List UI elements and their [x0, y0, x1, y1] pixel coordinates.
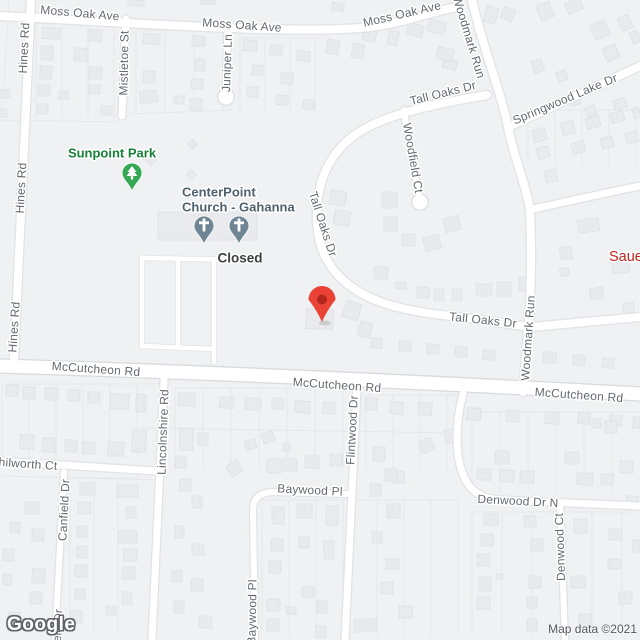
building	[559, 246, 573, 260]
building	[30, 592, 42, 604]
building	[601, 474, 614, 486]
building	[128, 0, 144, 6]
building	[467, 408, 482, 421]
building	[384, 217, 397, 231]
building	[544, 169, 558, 183]
building	[243, 40, 258, 52]
building	[89, 85, 100, 94]
building	[477, 469, 492, 481]
building	[245, 398, 262, 411]
building	[276, 94, 289, 105]
building	[402, 234, 415, 246]
building	[619, 592, 632, 604]
building	[252, 65, 264, 76]
building	[577, 473, 594, 486]
building	[520, 471, 535, 484]
building	[497, 282, 511, 296]
building	[427, 344, 440, 355]
building	[0, 109, 7, 117]
building	[589, 287, 603, 300]
poi-status-closed: Closed	[217, 251, 262, 266]
building	[574, 519, 587, 533]
building	[68, 390, 80, 401]
building	[396, 282, 406, 289]
building	[198, 433, 208, 445]
building	[101, 106, 112, 115]
building	[633, 417, 640, 428]
building	[106, 606, 116, 615]
building	[122, 592, 132, 604]
map-tiles: Moss Oak AveMoss Oak AveMoss Oak AveHine…	[0, 0, 640, 640]
building	[42, 28, 61, 40]
poi-label-saue[interactable]: Saue	[609, 249, 640, 265]
building	[329, 190, 347, 207]
building	[333, 210, 351, 227]
map-canvas[interactable]: Moss Oak AveMoss Oak AveMoss Oak AveHine…	[0, 0, 640, 640]
building	[452, 289, 462, 300]
building	[192, 496, 202, 508]
building	[366, 619, 376, 631]
building	[247, 87, 259, 98]
building	[296, 50, 310, 62]
building	[77, 526, 87, 537]
building	[78, 502, 91, 514]
building	[372, 532, 382, 543]
building	[180, 479, 191, 491]
building	[297, 504, 312, 518]
building	[620, 461, 634, 474]
building	[365, 398, 378, 411]
building	[387, 504, 400, 518]
building	[483, 350, 496, 361]
building	[38, 85, 50, 96]
poi-label-sunpoint-park[interactable]: Sunpoint Park	[68, 146, 157, 161]
building	[124, 549, 137, 561]
street-label-hines-rd: Hines Rd	[16, 22, 33, 74]
building	[299, 537, 309, 548]
building	[172, 571, 182, 582]
building	[484, 514, 498, 525]
building	[178, 393, 196, 407]
building	[381, 582, 393, 594]
building	[175, 526, 184, 538]
google-logo[interactable]: Google	[7, 614, 75, 636]
poi-label-church-line1[interactable]: CenterPoint	[182, 185, 256, 200]
building	[272, 398, 285, 410]
building	[434, 289, 444, 300]
building	[220, 397, 235, 409]
building	[269, 561, 281, 573]
building	[3, 574, 12, 585]
building	[332, 2, 345, 12]
building	[110, 394, 130, 410]
building	[143, 71, 155, 83]
building	[633, 540, 640, 552]
building	[602, 358, 615, 369]
street-label-juniper-ln: Juniper Ln	[219, 34, 235, 93]
building	[324, 541, 334, 559]
building	[75, 589, 85, 600]
building	[65, 440, 77, 452]
building	[527, 597, 537, 608]
building	[192, 36, 205, 46]
building	[40, 66, 52, 79]
building	[118, 531, 137, 543]
building	[75, 565, 87, 577]
building	[531, 539, 543, 551]
building	[283, 444, 290, 451]
building	[267, 599, 280, 611]
building	[23, 387, 35, 399]
building	[529, 576, 541, 588]
building	[527, 619, 537, 631]
building	[609, 529, 622, 540]
building	[174, 96, 184, 104]
building	[354, 620, 364, 632]
building	[382, 192, 397, 208]
building	[592, 419, 601, 428]
building	[477, 597, 490, 609]
building	[132, 430, 147, 452]
building	[399, 606, 412, 618]
building	[122, 567, 135, 579]
building	[88, 392, 100, 403]
building	[32, 569, 45, 583]
building	[3, 549, 14, 561]
building	[608, 559, 621, 569]
building	[191, 79, 203, 89]
building	[477, 554, 490, 566]
building	[180, 428, 193, 450]
building	[195, 59, 205, 71]
building	[6, 385, 18, 396]
building	[543, 352, 557, 364]
building	[317, 601, 327, 613]
building	[108, 442, 124, 457]
building	[74, 48, 88, 61]
building	[524, 516, 536, 527]
building	[175, 456, 186, 468]
building	[385, 469, 397, 481]
building	[283, 459, 297, 471]
building	[330, 454, 342, 466]
building	[192, 544, 204, 555]
building	[573, 355, 586, 366]
building	[42, 438, 56, 452]
building	[326, 39, 340, 55]
building	[267, 619, 279, 631]
building	[89, 67, 102, 79]
building	[190, 99, 202, 110]
street-label-denwood-ct: Denwood Ct	[552, 512, 568, 581]
building	[281, 72, 294, 84]
street-label-baywood-pl: Baywood Pl	[244, 579, 259, 640]
building	[271, 539, 283, 551]
building	[37, 104, 48, 114]
building	[20, 435, 34, 449]
building	[351, 43, 365, 59]
building	[605, 421, 617, 433]
building	[59, 91, 68, 99]
street-label-lincolnshire-rd: Lincolnshire Rd	[155, 389, 172, 475]
building	[481, 534, 493, 546]
building	[370, 484, 381, 496]
building	[199, 616, 212, 628]
building	[500, 470, 515, 483]
building	[302, 99, 314, 109]
building	[476, 284, 492, 296]
building	[479, 577, 491, 591]
building	[371, 338, 383, 349]
building	[417, 287, 429, 298]
building	[32, 529, 44, 541]
building	[418, 403, 433, 416]
building	[578, 413, 591, 425]
building	[272, 507, 284, 524]
building	[496, 574, 503, 579]
building	[559, 267, 569, 276]
building	[0, 90, 10, 98]
map-data-attribution: Map data ©2021	[548, 622, 637, 636]
building	[270, 44, 283, 55]
building	[25, 502, 39, 514]
building	[316, 626, 326, 638]
building	[139, 90, 158, 104]
building	[390, 402, 404, 415]
building	[545, 412, 560, 425]
building	[507, 410, 520, 423]
building	[191, 579, 203, 591]
building	[77, 546, 87, 558]
building	[45, 388, 58, 400]
street-label-mistletoe-st: Mistletoe St	[116, 30, 131, 96]
building	[117, 485, 138, 497]
building	[571, 576, 585, 588]
building	[374, 266, 389, 279]
building	[295, 401, 311, 414]
building	[200, 0, 215, 4]
building	[88, 30, 103, 42]
building	[10, 522, 20, 533]
street-label-hines-rd: Hines Rd	[13, 162, 30, 214]
building	[495, 451, 509, 464]
building	[305, 456, 319, 468]
building	[143, 34, 160, 45]
building	[386, 559, 399, 569]
building	[286, 607, 296, 614]
building	[126, 507, 136, 518]
building	[174, 601, 184, 613]
building	[399, 341, 412, 352]
building	[565, 452, 579, 464]
building	[622, 302, 634, 313]
building	[136, 394, 147, 412]
building	[455, 347, 468, 358]
building	[41, 46, 53, 60]
building	[302, 587, 314, 597]
building	[80, 483, 95, 495]
building	[373, 447, 385, 461]
building	[577, 218, 600, 234]
building	[83, 442, 95, 454]
poi-label-church-line2[interactable]: Church - Gahanna	[182, 200, 295, 215]
building	[326, 506, 338, 525]
building	[323, 402, 336, 415]
building	[267, 459, 281, 473]
